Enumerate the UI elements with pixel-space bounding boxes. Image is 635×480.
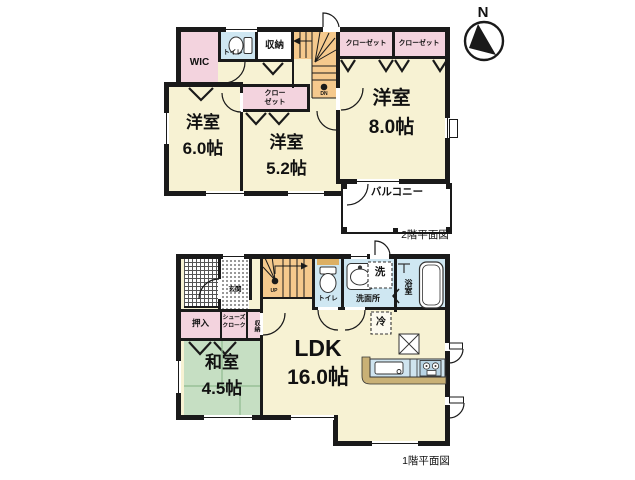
porch-step <box>184 306 218 308</box>
ldk-size: 16.0帖 <box>258 364 378 392</box>
washitsu-name: 和室 <box>184 350 260 376</box>
wall <box>340 56 450 59</box>
washer-label: 洗 <box>368 266 392 279</box>
up-label: UP <box>262 288 286 294</box>
floor1-title: 1階平面図 <box>396 455 456 468</box>
room8-size: 8.0帖 <box>338 114 445 143</box>
shoe-closet-line1: シューズ <box>222 315 246 323</box>
door-gap <box>260 313 263 335</box>
wall <box>164 82 243 87</box>
bath-label: 浴室 <box>403 272 413 302</box>
floor2-title: 2階平面図 <box>396 229 454 242</box>
wall <box>243 84 310 87</box>
window <box>176 360 181 394</box>
washroom-label: 洗面所 <box>342 294 394 304</box>
dn-label: DN <box>312 91 336 97</box>
closet-small-line1: クロー <box>243 89 307 98</box>
washitsu-label: 和室 4.5帖 <box>184 350 260 403</box>
genkan <box>221 259 249 311</box>
room6-label: 洋室 6.0帖 <box>164 110 242 163</box>
window <box>287 191 325 196</box>
fridge-label: 冷 <box>371 317 391 330</box>
door-gap <box>445 343 450 351</box>
window <box>371 441 419 446</box>
stairs-2f <box>294 32 336 59</box>
room6-size: 6.0帖 <box>164 136 242 162</box>
window-shutter <box>449 119 458 138</box>
window <box>350 254 368 259</box>
closet-a-label: クローゼット <box>340 40 392 48</box>
wall <box>246 312 248 341</box>
toilet-1f-label: トイレ <box>315 295 341 303</box>
wall <box>445 27 450 184</box>
wall <box>394 254 397 312</box>
window <box>356 179 400 184</box>
shoe-closet-line2: クローク <box>222 323 246 331</box>
closet-b-label: クローゼット <box>393 40 445 48</box>
closet-small-label: クロー ゼット <box>243 89 307 108</box>
oshiire-label: 押入 <box>181 318 220 329</box>
door-gap <box>445 397 450 405</box>
room8-name: 洋室 <box>338 85 445 114</box>
wall <box>291 27 294 62</box>
exterior-door-leaves <box>450 343 464 403</box>
wall <box>292 62 294 88</box>
entrance-porch <box>184 259 218 307</box>
toilet-shelf <box>317 259 339 265</box>
closet-small-line2: ゼット <box>243 98 307 107</box>
room52-label: 洋室 5.2帖 <box>243 130 330 183</box>
ldk-label: LDK 16.0帖 <box>258 333 378 392</box>
shoe-closet-label: シューズ クローク <box>222 315 246 330</box>
window <box>203 415 253 420</box>
window <box>225 27 258 32</box>
balcony-post <box>341 227 347 234</box>
genkan-label: 玄関 <box>221 286 249 294</box>
door-gap <box>318 307 338 310</box>
window <box>290 415 335 420</box>
balcony-label: バルコニー <box>343 186 451 199</box>
ldk-name: LDK <box>258 333 378 364</box>
washitsu-size: 4.5帖 <box>184 376 260 402</box>
compass-n-label: N <box>468 4 498 23</box>
wall <box>243 109 310 112</box>
room52-size: 5.2帖 <box>243 156 330 182</box>
wall <box>263 297 312 299</box>
storage-2f-label: 収納 <box>258 40 291 52</box>
wall <box>249 254 252 300</box>
wall <box>307 84 310 112</box>
compass-icon <box>465 22 503 60</box>
wall <box>218 59 294 62</box>
wic-label: WIC <box>181 57 218 70</box>
window <box>222 254 245 259</box>
door-gap <box>370 254 389 259</box>
wall <box>218 254 221 279</box>
room52-name: 洋室 <box>243 130 330 156</box>
wall <box>176 254 181 420</box>
wall <box>260 254 263 313</box>
window <box>205 191 245 196</box>
room8-label: 洋室 8.0帖 <box>338 85 445 142</box>
floorplan-canvas: WIC トイレ 収納 クローゼット クローゼット クロー ゼット 洋室 6.0帖… <box>0 0 635 480</box>
door-gap <box>323 27 340 32</box>
door-gap <box>345 307 365 310</box>
toilet-2f-label: トイレ <box>220 49 246 57</box>
room6-name: 洋室 <box>164 110 242 136</box>
